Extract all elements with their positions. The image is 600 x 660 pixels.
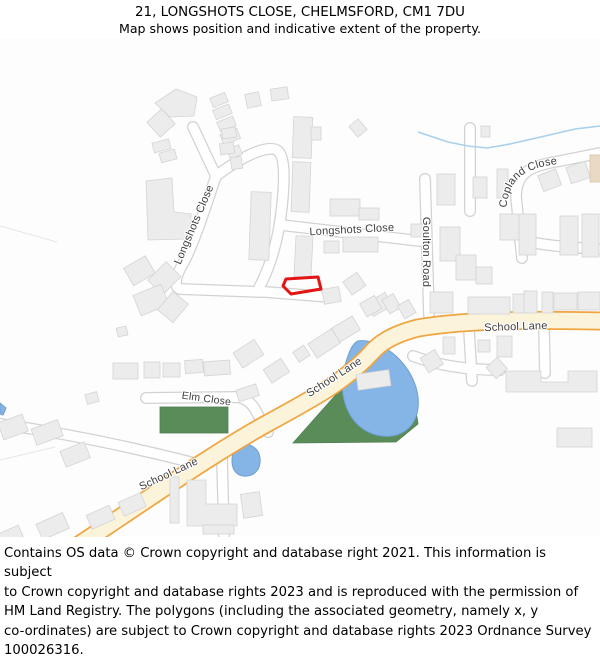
property-map: Longshots Close Longshots Close Goulton … [0, 38, 600, 537]
street-label-school-lane-east: School Lane [484, 320, 548, 334]
buildings-layer [0, 87, 600, 537]
page-subtitle: Map shows position and indicative extent… [0, 21, 600, 37]
map-header: 21, LONGSHOTS CLOSE, CHELMSFORD, CM1 7DU… [0, 0, 600, 38]
street-label-goulton-road: Goulton Road [420, 217, 432, 287]
stream [418, 126, 600, 148]
copyright-line: 100026316. [4, 641, 594, 660]
green-space [160, 407, 228, 433]
property-plot-outline [283, 277, 321, 294]
copyright-notice: Contains OS data © Crown copyright and d… [0, 537, 600, 660]
copyright-line: HM Land Registry. The polygons (includin… [4, 602, 594, 621]
copyright-line: Contains OS data © Crown copyright and d… [4, 544, 594, 583]
pond [0, 403, 6, 415]
page-title: 21, LONGSHOTS CLOSE, CHELMSFORD, CM1 7DU [0, 5, 600, 21]
map-container: Longshots Close Longshots Close Goulton … [0, 38, 600, 537]
copyright-line: to Crown copyright and database rights 2… [4, 583, 594, 602]
